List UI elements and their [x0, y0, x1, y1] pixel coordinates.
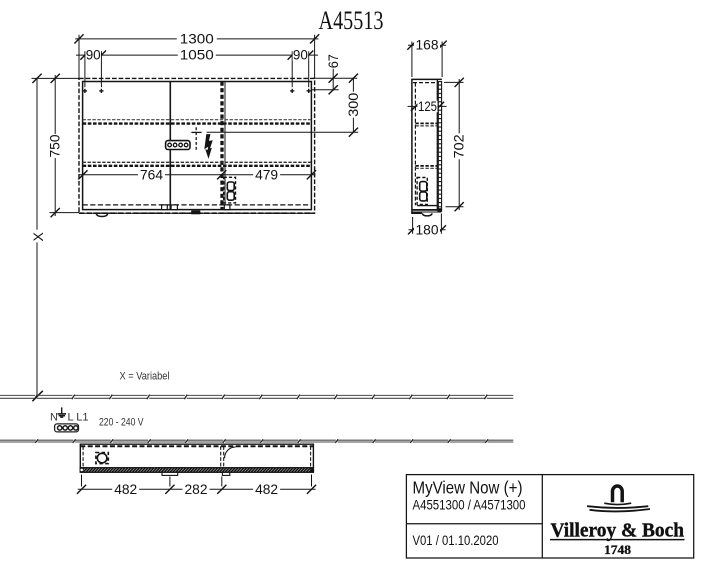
svg-text:N: N	[50, 412, 58, 424]
svg-text:750: 750	[47, 134, 63, 157]
svg-text:A4551300 / A4571300: A4551300 / A4571300	[413, 498, 526, 513]
svg-text:V01 / 01.10.2020: V01 / 01.10.2020	[413, 533, 499, 548]
svg-text:1748: 1748	[604, 542, 632, 557]
svg-text:L1: L1	[76, 412, 88, 424]
svg-text:1050: 1050	[180, 47, 214, 63]
svg-text:764: 764	[140, 166, 163, 182]
svg-text:482: 482	[114, 481, 137, 497]
svg-text:L: L	[68, 412, 74, 424]
svg-text:220 - 240 V: 220 - 240 V	[99, 417, 144, 429]
svg-text:180: 180	[416, 221, 439, 237]
svg-text:479: 479	[255, 166, 278, 182]
svg-text:MyView Now (+): MyView Now (+)	[413, 478, 523, 498]
svg-text:125: 125	[418, 98, 437, 114]
svg-text:X: X	[30, 231, 46, 241]
svg-text:Villeroy & Boch: Villeroy & Boch	[551, 520, 685, 542]
svg-text:90: 90	[86, 47, 101, 63]
svg-text:67: 67	[325, 54, 341, 68]
svg-text:168: 168	[416, 37, 439, 53]
svg-text:1300: 1300	[180, 30, 214, 46]
svg-text:282: 282	[185, 481, 208, 497]
svg-text:X = Variabel: X = Variabel	[120, 371, 170, 383]
svg-text:A45513: A45513	[319, 6, 384, 35]
svg-text:702: 702	[451, 134, 467, 158]
svg-text:90: 90	[293, 47, 308, 63]
svg-text:300: 300	[345, 92, 361, 116]
svg-text:482: 482	[255, 481, 278, 497]
